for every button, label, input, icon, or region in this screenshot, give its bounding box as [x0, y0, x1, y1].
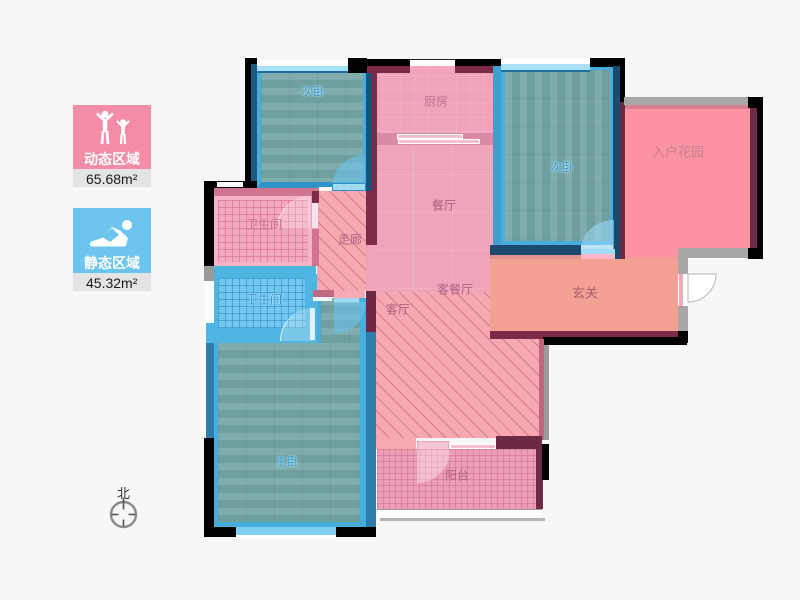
svg-text:北: 北 [117, 486, 130, 501]
